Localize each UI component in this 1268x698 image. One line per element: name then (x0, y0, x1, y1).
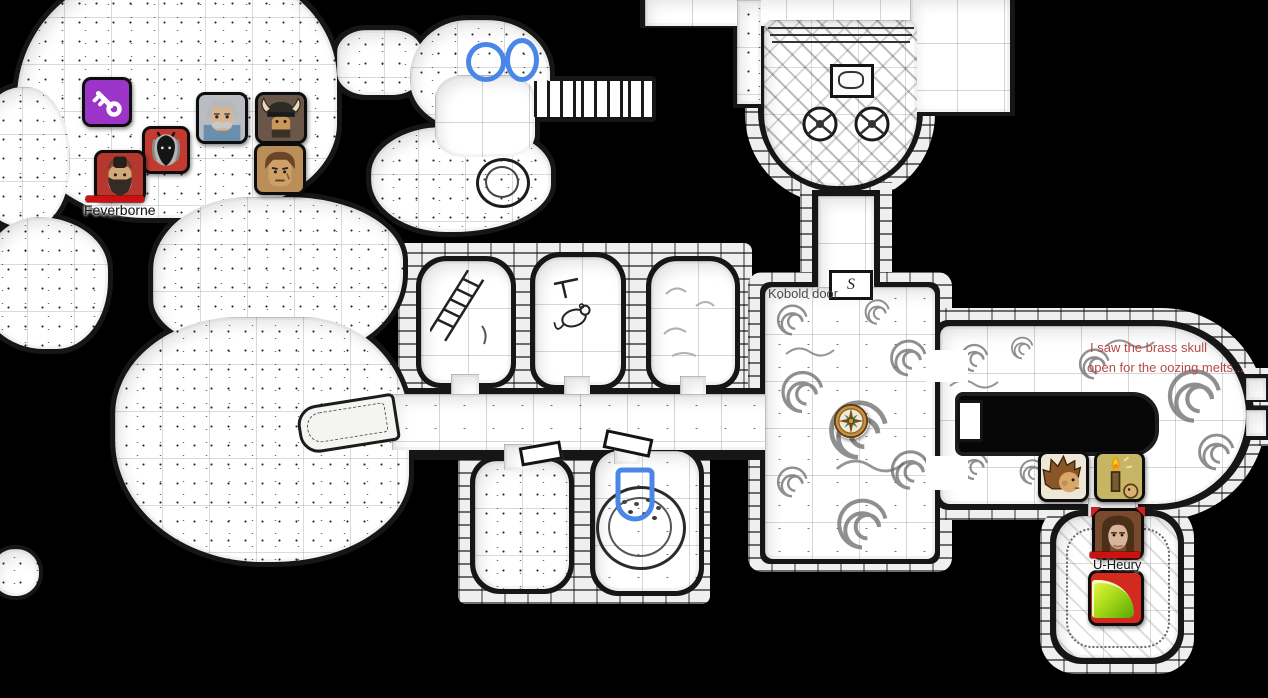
east-stub-2-floor (1246, 410, 1266, 436)
green-ooze-icon (1092, 580, 1134, 618)
cell-3-scuff-marks (656, 272, 726, 372)
compass-rose-icon (833, 403, 869, 439)
cave-well-inner-ring (485, 166, 519, 198)
island-alcove (957, 400, 983, 442)
rugged-man-portrait-icon (257, 146, 303, 192)
u-heury-label: U-Heury (1093, 557, 1141, 572)
blue-u-annotation (612, 462, 660, 534)
green-ooze-token[interactable] (1088, 570, 1144, 626)
horned-helmet-portrait-icon (258, 95, 304, 141)
elder-portrait-token[interactable] (196, 92, 248, 144)
chapel-chest (830, 64, 874, 98)
cave-passage-floor (337, 30, 422, 95)
map-canvas[interactable]: S (0, 0, 1268, 698)
chapel-left-wall (737, 0, 761, 104)
brazier-icon (852, 104, 892, 144)
long-haired-portrait-icon (1095, 511, 1141, 557)
rat-sketch (544, 276, 614, 342)
u-corridor-center-island (955, 392, 1159, 456)
cave-left-arm2-floor (0, 217, 108, 349)
kobold-door-label: Kobold door (768, 286, 838, 301)
candle-portrait-icon (1097, 454, 1142, 499)
brazier-icon (800, 104, 840, 144)
feverborne-label: Feverborne (84, 202, 156, 218)
spiky-hair-portrait-icon (1041, 454, 1086, 499)
kobold-room-east-door-lower (926, 456, 968, 490)
s-door-glyph: S (847, 276, 855, 294)
demon-face-icon (145, 129, 187, 171)
key-icon (85, 80, 129, 124)
horned-helmet-token[interactable] (255, 92, 307, 144)
feverborne-token[interactable] (94, 150, 146, 202)
spiky-hair-token[interactable] (1038, 451, 1089, 502)
purple-key-token[interactable] (82, 77, 132, 127)
east-stub-1-floor (1246, 378, 1266, 400)
top-right-block-floor (910, 0, 1010, 112)
main-corridor-floor (392, 394, 782, 450)
cell-4-floor (475, 461, 569, 589)
cave-well-feature (476, 158, 530, 208)
rugged-man-token[interactable] (254, 143, 306, 195)
chapel-chest-lid (838, 71, 864, 89)
bearded-man-portrait-icon (97, 153, 143, 199)
candle-token[interactable] (1094, 451, 1145, 502)
broken-ladder-sketch (430, 268, 502, 363)
stairs-corridor-rungs (534, 81, 652, 117)
kobold-room-east-door-upper (926, 350, 968, 382)
compass-rose-token[interactable] (833, 403, 869, 439)
cave-room-connector-floor (435, 75, 535, 157)
map-note-line-1: I saw the brass skull (1090, 340, 1207, 355)
map-note-line-2: open for the oozing melts... (1087, 360, 1244, 375)
blue-ellipse-annotation (505, 38, 539, 82)
chapel-steps (766, 24, 916, 46)
demon-face-token[interactable] (142, 126, 190, 174)
elder-portrait-icon (199, 95, 245, 141)
sarcophagus-carvings (305, 402, 389, 444)
blue-circle-annotation (466, 42, 506, 82)
